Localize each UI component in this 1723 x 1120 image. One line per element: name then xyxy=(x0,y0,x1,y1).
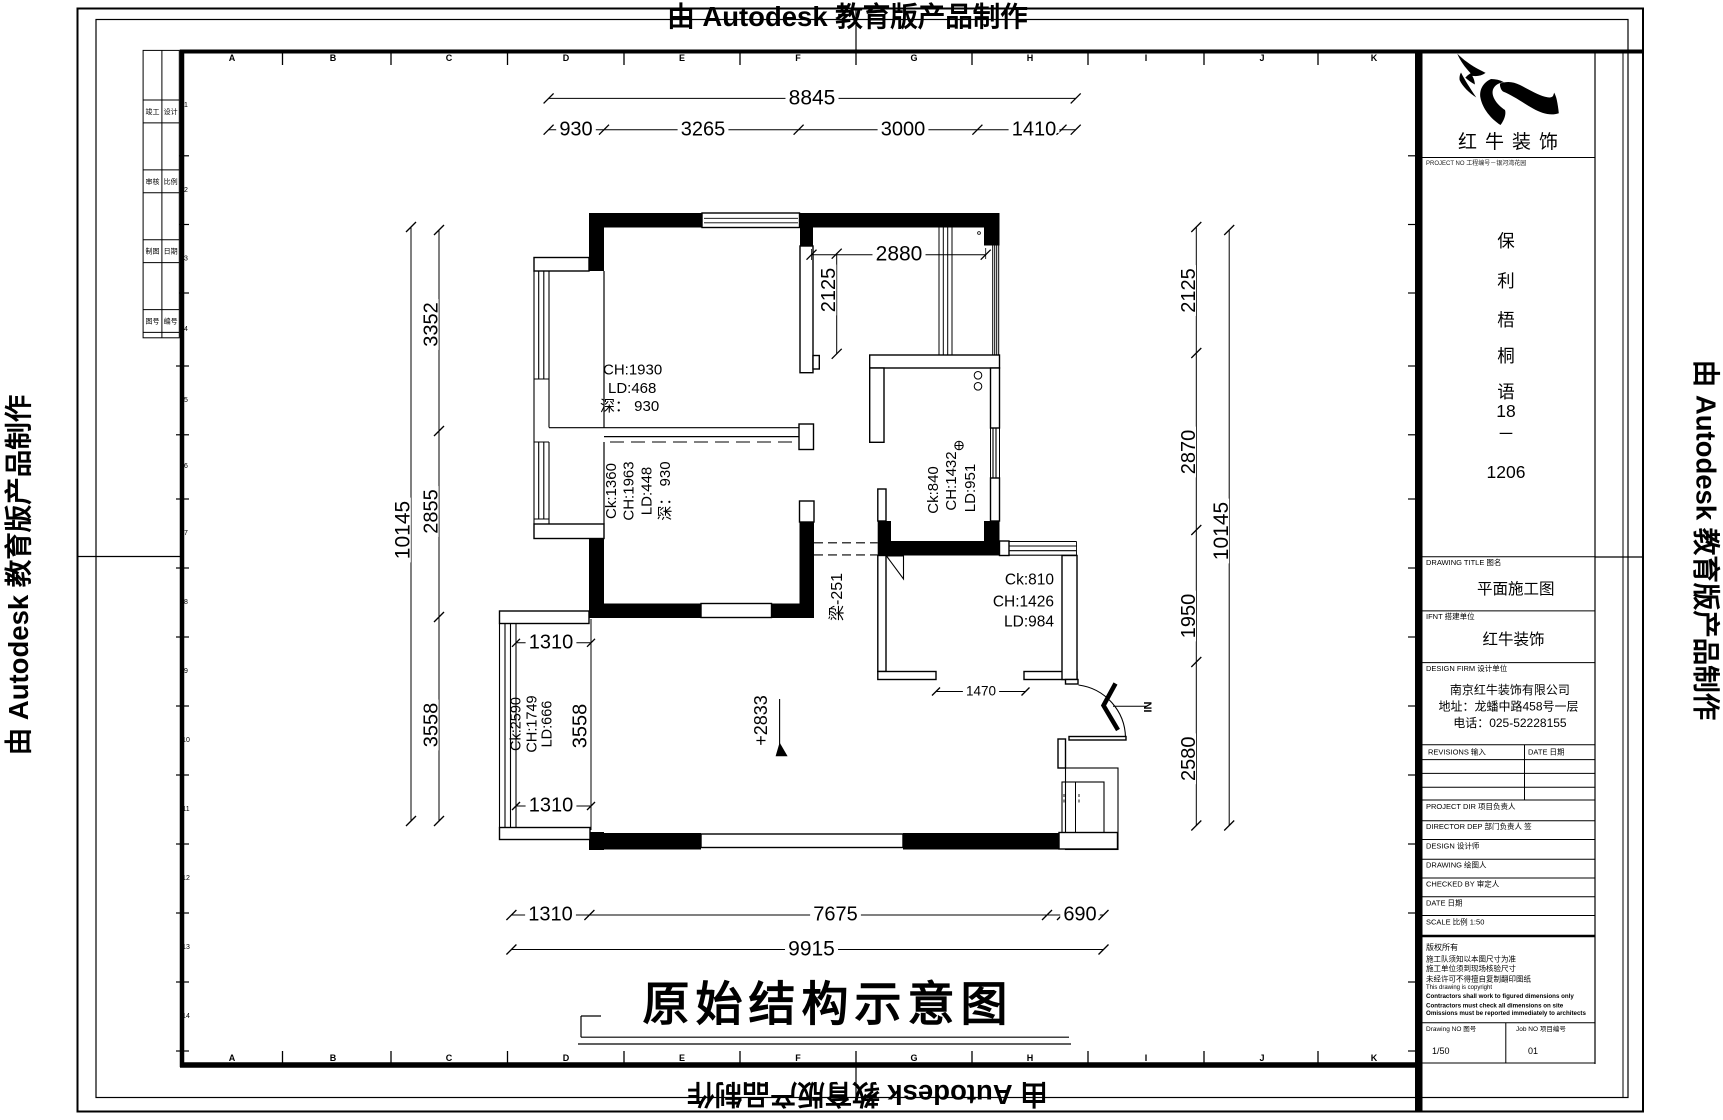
svg-text:13: 13 xyxy=(182,944,190,951)
svg-text:Ck:810: Ck:810 xyxy=(1005,572,1054,589)
svg-text:10145: 10145 xyxy=(392,501,415,559)
svg-text:Ck:840: Ck:840 xyxy=(925,466,942,514)
svg-text:I: I xyxy=(1145,1053,1148,1063)
svg-text:J: J xyxy=(1259,1053,1264,1063)
svg-text:IFNT 搭建单位: IFNT 搭建单位 xyxy=(1426,611,1475,621)
svg-text:J: J xyxy=(1259,53,1264,63)
svg-text:1410: 1410 xyxy=(1012,118,1057,140)
svg-text:7675: 7675 xyxy=(813,904,858,926)
svg-text:7: 7 xyxy=(184,530,188,537)
svg-text:3000: 3000 xyxy=(881,118,926,140)
svg-text:This drawing is copyright: This drawing is copyright xyxy=(1426,985,1492,991)
svg-text:电话：025-52228155: 电话：025-52228155 xyxy=(1453,716,1567,730)
svg-text:2125: 2125 xyxy=(818,268,840,313)
svg-text:原始结构示意图: 原始结构示意图 xyxy=(643,978,1014,1031)
svg-text:桐: 桐 xyxy=(1497,346,1515,366)
svg-text:施工队须知以本图尺寸为准: 施工队须知以本图尺寸为准 xyxy=(1426,954,1516,964)
svg-text:平面施工图: 平面施工图 xyxy=(1477,580,1555,598)
svg-text:E: E xyxy=(679,53,685,63)
svg-text:由 Autodesk 教育版产品制作: 由 Autodesk 教育版产品制作 xyxy=(1691,360,1722,721)
svg-text:3558: 3558 xyxy=(570,704,592,749)
svg-text:深： 930: 深： 930 xyxy=(600,398,659,415)
svg-text:DIRECTOR DEP 部门负责人 签: DIRECTOR DEP 部门负责人 签 xyxy=(1426,821,1532,831)
svg-text:G: G xyxy=(910,53,917,63)
svg-text:2125: 2125 xyxy=(1178,268,1200,313)
svg-text:DATE 日期: DATE 日期 xyxy=(1528,748,1565,757)
svg-text:CH:1749: CH:1749 xyxy=(525,695,541,752)
svg-text:DESIGN 设计师: DESIGN 设计师 xyxy=(1426,841,1480,851)
svg-text:1310: 1310 xyxy=(528,904,573,926)
svg-text:H: H xyxy=(1027,1053,1034,1063)
svg-text:A: A xyxy=(229,1053,236,1063)
svg-text:E: E xyxy=(679,1053,685,1063)
svg-text:CHECKED BY 审定人: CHECKED BY 审定人 xyxy=(1426,879,1500,889)
svg-text:Drawing NO 图号: Drawing NO 图号 xyxy=(1426,1025,1477,1033)
svg-text:红牛装饰: 红牛装饰 xyxy=(1482,631,1544,649)
svg-text:由 Autodesk 教育版产品制作: 由 Autodesk 教育版产品制作 xyxy=(667,1,1028,32)
svg-text:+2833: +2833 xyxy=(751,695,771,746)
svg-text:I: I xyxy=(1145,53,1148,63)
svg-text:12: 12 xyxy=(182,875,190,882)
svg-text:1/50: 1/50 xyxy=(1432,1046,1450,1056)
svg-text:G: G xyxy=(910,1053,917,1063)
svg-text:K: K xyxy=(1371,1053,1378,1063)
svg-text:DATE 日期: DATE 日期 xyxy=(1426,899,1463,908)
svg-text:梁-251: 梁-251 xyxy=(828,573,846,621)
svg-text:D: D xyxy=(563,1053,570,1063)
svg-text:2880: 2880 xyxy=(876,243,923,266)
svg-text:图号: 图号 xyxy=(146,318,160,326)
svg-text:DRAWING 绘图人: DRAWING 绘图人 xyxy=(1426,860,1487,870)
svg-text:6: 6 xyxy=(184,463,188,470)
svg-text:比例: 比例 xyxy=(164,177,178,186)
svg-text:－: － xyxy=(1497,424,1515,444)
svg-text:SCALE 比例 1:50: SCALE 比例 1:50 xyxy=(1426,917,1484,927)
svg-text:3352: 3352 xyxy=(421,302,443,347)
svg-text:Ck:1360: Ck:1360 xyxy=(603,463,620,519)
svg-text:2: 2 xyxy=(184,187,188,194)
svg-text:LD:448: LD:448 xyxy=(639,467,656,515)
svg-text:9915: 9915 xyxy=(788,937,835,960)
svg-text:B: B xyxy=(330,1053,337,1063)
svg-text:语: 语 xyxy=(1497,382,1515,402)
svg-text:Ck:2590: Ck:2590 xyxy=(509,697,525,751)
svg-text:地址：龙蟠中路458号一层: 地址：龙蟠中路458号一层 xyxy=(1438,699,1578,714)
svg-text:CH:1930: CH:1930 xyxy=(603,362,662,379)
svg-text:B: B xyxy=(330,53,337,63)
svg-text:设计: 设计 xyxy=(164,107,178,116)
svg-text:4: 4 xyxy=(184,326,188,333)
svg-text:2870: 2870 xyxy=(1178,430,1200,475)
svg-text:C: C xyxy=(446,53,453,63)
svg-text:930: 930 xyxy=(559,118,592,140)
svg-text:由 Autodesk 教育版产品制作: 由 Autodesk 教育版产品制作 xyxy=(3,395,34,756)
svg-text:01: 01 xyxy=(1528,1046,1538,1056)
svg-text:LD:666: LD:666 xyxy=(540,701,556,748)
svg-text:制图: 制图 xyxy=(146,247,160,256)
svg-text:DRAWING TITLE 图名: DRAWING TITLE 图名 xyxy=(1426,557,1501,567)
svg-text:1950: 1950 xyxy=(1178,594,1200,639)
svg-text:1470: 1470 xyxy=(966,683,996,698)
svg-text:2855: 2855 xyxy=(421,489,443,534)
svg-text:未经许可不得擅自复制翻印图纸: 未经许可不得擅自复制翻印图纸 xyxy=(1426,974,1531,984)
svg-text:3: 3 xyxy=(184,256,188,263)
svg-text:梧: 梧 xyxy=(1497,310,1515,330)
svg-text:审核: 审核 xyxy=(146,177,160,186)
svg-text:LD:984: LD:984 xyxy=(1004,614,1054,631)
svg-text:10: 10 xyxy=(182,737,190,744)
svg-text:保: 保 xyxy=(1497,231,1515,251)
svg-text:由 Autodesk 教育版产品制作: 由 Autodesk 教育版产品制作 xyxy=(687,1079,1048,1110)
svg-text:690: 690 xyxy=(1063,904,1096,926)
svg-text:1310: 1310 xyxy=(529,795,574,817)
svg-text:C: C xyxy=(446,1053,453,1063)
svg-text:IN: IN xyxy=(1143,701,1155,712)
svg-text:11: 11 xyxy=(182,806,189,813)
svg-text:CH:1426: CH:1426 xyxy=(993,594,1054,611)
svg-text:Omissions must be reported imm: Omissions must be reported immediately t… xyxy=(1426,1010,1586,1017)
svg-text:竣工: 竣工 xyxy=(146,107,160,116)
svg-text:5: 5 xyxy=(184,397,188,404)
svg-text:PROJECT NO 工程编号－银河湾花园: PROJECT NO 工程编号－银河湾花园 xyxy=(1426,159,1526,167)
svg-text:DESIGN FIRM 设计单位: DESIGN FIRM 设计单位 xyxy=(1426,663,1508,673)
svg-text:3558: 3558 xyxy=(421,703,443,748)
svg-text:D: D xyxy=(563,53,570,63)
svg-text:REVISIONS 输入: REVISIONS 输入 xyxy=(1428,747,1486,757)
svg-text:红牛装饰: 红牛装饰 xyxy=(1458,131,1566,153)
svg-text:18: 18 xyxy=(1496,401,1515,421)
svg-text:F: F xyxy=(795,1053,801,1063)
svg-text:深： 930: 深： 930 xyxy=(657,461,674,520)
svg-text:14: 14 xyxy=(182,1013,190,1020)
svg-text:3265: 3265 xyxy=(681,118,726,140)
svg-text:CH:1432: CH:1432 xyxy=(943,451,960,510)
svg-text:Job NO 项目编号: Job NO 项目编号 xyxy=(1516,1024,1566,1033)
svg-text:施工单位须到现场核验尺寸: 施工单位须到现场核验尺寸 xyxy=(1426,963,1516,973)
svg-text:南京红牛装饰有限公司: 南京红牛装饰有限公司 xyxy=(1450,682,1570,697)
svg-text:编号: 编号 xyxy=(164,317,178,326)
svg-text:F: F xyxy=(795,53,801,63)
svg-text:LD:468: LD:468 xyxy=(608,380,656,397)
svg-text:PROJECT DIR 项目负责人: PROJECT DIR 项目负责人 xyxy=(1426,801,1516,811)
svg-text:Contractors shall work to figu: Contractors shall work to figured dimens… xyxy=(1426,993,1574,1000)
svg-text:1206: 1206 xyxy=(1487,462,1526,482)
svg-text:K: K xyxy=(1371,53,1378,63)
svg-text:H: H xyxy=(1027,53,1034,63)
svg-text:10145: 10145 xyxy=(1210,502,1233,560)
svg-text:8: 8 xyxy=(184,599,188,606)
svg-text:9: 9 xyxy=(184,668,188,675)
svg-text:Contractors must check all dim: Contractors must check all dimensions on… xyxy=(1426,1003,1564,1010)
svg-text:利: 利 xyxy=(1497,271,1515,291)
svg-text:2580: 2580 xyxy=(1178,737,1200,782)
svg-text:LD:951: LD:951 xyxy=(962,464,979,512)
svg-text:1: 1 xyxy=(184,102,188,109)
svg-text:1310: 1310 xyxy=(529,631,574,653)
svg-text:日期: 日期 xyxy=(164,248,178,256)
svg-text:8845: 8845 xyxy=(789,86,836,109)
svg-text:A: A xyxy=(229,53,236,63)
svg-text:版权所有: 版权所有 xyxy=(1426,942,1458,952)
svg-text:CH:1963: CH:1963 xyxy=(621,461,638,520)
